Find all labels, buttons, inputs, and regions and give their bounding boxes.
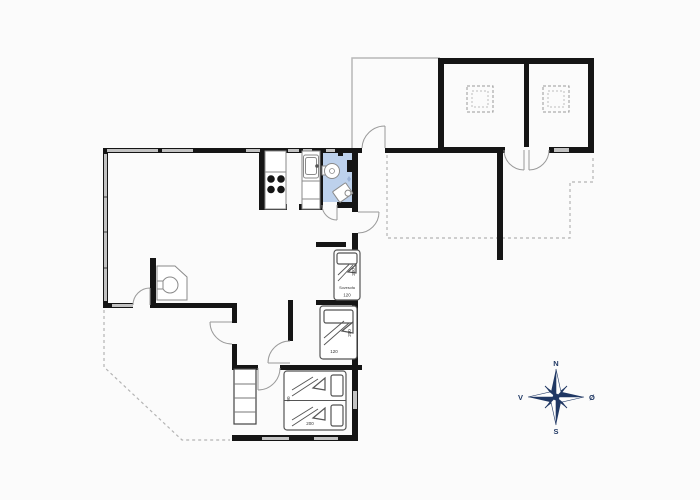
bathroom-door [322,205,337,220]
west-terrace-door [210,322,232,344]
entrance-door [362,126,385,148]
terrace-outline-north [387,155,593,238]
closet [234,369,256,424]
double-bed-length-label: 200 [306,421,314,426]
double-bed [284,371,346,430]
skylight-icon-right [543,86,569,112]
single-bed-width-label: 120 [330,349,338,354]
middle-bedroom-door [268,341,290,363]
wc-door [133,288,150,305]
annex-right-door [529,150,549,170]
floorplan-drawing: 200 Sovesofa 120 200 120 90 200 N S Ø V [0,0,700,500]
compass-label-west: V [518,393,523,402]
compass-rose: N S Ø V [518,359,595,436]
wc-toilet-icon [157,266,187,300]
wc-wall [150,258,156,308]
sovesofa-width-label: 120 [343,293,351,298]
compass-label-south: S [553,427,558,436]
skylight-icon-left [467,86,493,112]
single-bed-length-label: 200 [347,329,352,337]
east-terrace-door [358,212,379,233]
annex-left-door [504,150,524,170]
kitchen-counter-right [302,151,320,209]
kitchen-counter-left [265,151,286,209]
south-bedroom-door [258,368,280,390]
annex-walls [438,58,594,153]
windbreak-wall-side [497,148,503,260]
compass-label-north: N [553,359,558,368]
floorplan-canvas: 200 Sovesofa 120 200 120 90 200 N S Ø V [0,0,700,500]
porch-outline [352,58,440,148]
double-bed-width-label: 90 [286,396,291,402]
sovesofa-name-label: Sovesofa [339,286,356,290]
sink-icon [304,155,319,178]
sovesofa-length-label: 200 [351,268,356,276]
compass-label-east: Ø [589,393,595,402]
